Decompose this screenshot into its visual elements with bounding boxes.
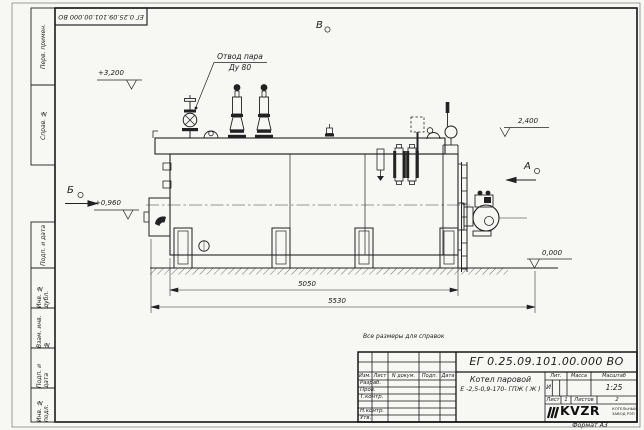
margin-cell-podp-data-2: Подп. и дата <box>36 348 50 388</box>
dimension-5050: 5050 <box>285 281 329 288</box>
hdr-lit: Лит. <box>545 374 567 379</box>
hdr-massa: Масса <box>567 374 591 379</box>
dimension-5530: 5530 <box>315 298 359 305</box>
blower <box>458 191 527 236</box>
val-listov: 2 <box>597 398 637 403</box>
product-model: Е -2,5-0,9-170- ГПЖ ( Ж ) <box>457 387 544 394</box>
view-arrows <box>65 27 540 206</box>
factory-logo-sub2: ЗАВОД РЭП <box>612 412 635 416</box>
margin-cell-perv-primen: Перв. примен. <box>40 24 47 69</box>
col-podp: Подп. <box>419 374 440 379</box>
elevation-3200: +3,200 <box>98 70 124 77</box>
elevation-2400: 2,400 <box>518 118 538 125</box>
sight-glass <box>199 240 209 252</box>
elevation-0000: 0,000 <box>542 250 562 257</box>
margin-cell-vzam-inv: Взам. инв. № <box>36 308 50 348</box>
row-prov: Пров. <box>360 388 376 394</box>
burner <box>144 163 171 236</box>
row-tkontr: Т.контр. <box>360 395 383 401</box>
format-label: Формат А3 <box>545 423 635 430</box>
ladder <box>458 162 467 272</box>
lbl-list: Лист <box>545 398 561 403</box>
factory-logo-icon <box>548 407 558 418</box>
title-doc-number: ЕГ 0.25.09.101.00.000 ВО <box>457 352 636 372</box>
view-label-v: В <box>316 21 323 32</box>
margin-cell-sprav-no: Справ. № <box>40 110 47 140</box>
safety-valves <box>228 84 273 138</box>
margin-cell-podp-data-1: Подп. и дата <box>40 225 47 266</box>
steam-outlet-label-line2: Ду 80 <box>212 64 268 72</box>
elevation-marks <box>94 80 572 268</box>
doc-number-top: ЕГ 0.25.09.101.00.000 ВО <box>55 8 147 25</box>
factory-logo: KVZR <box>560 404 600 417</box>
product-name: Котел паровой <box>457 376 544 384</box>
margin-cell-inv-podl: Инв. № подл. <box>36 388 50 422</box>
row-utv: Утв. <box>360 416 371 422</box>
hdr-masshtab: Масштаб <box>591 374 637 379</box>
margin-cell-inv-dubl: Инв. № дубл. <box>36 268 50 308</box>
col-izm: Изм. <box>358 374 372 379</box>
col-ndokum: N докум. <box>388 374 419 379</box>
drum-fittings <box>325 102 457 152</box>
water-gauges <box>377 145 419 185</box>
col-list: Лист <box>372 374 388 379</box>
view-label-a: А <box>524 162 531 173</box>
elevation-0960: +0,960 <box>95 200 121 207</box>
lit-value: И <box>544 384 553 391</box>
view-label-b: Б <box>67 186 74 197</box>
col-data: Дата <box>440 374 456 379</box>
steam-valve <box>182 95 198 138</box>
support-legs <box>174 228 458 268</box>
drawing-sheet: ЕГ 0.25.09.101.00.000 ВО Перв. примен. С… <box>0 0 644 430</box>
reference-note: Все размеры для справок <box>363 334 444 340</box>
boiler-body <box>146 131 470 255</box>
row-nkontr: Н.контр. <box>360 409 384 415</box>
row-razrab: Разраб. <box>360 381 381 387</box>
ground-hatch <box>150 268 558 275</box>
scale-value: 1:25 <box>591 384 637 392</box>
steam-outlet-label-line1: Отвод пара <box>212 53 268 61</box>
